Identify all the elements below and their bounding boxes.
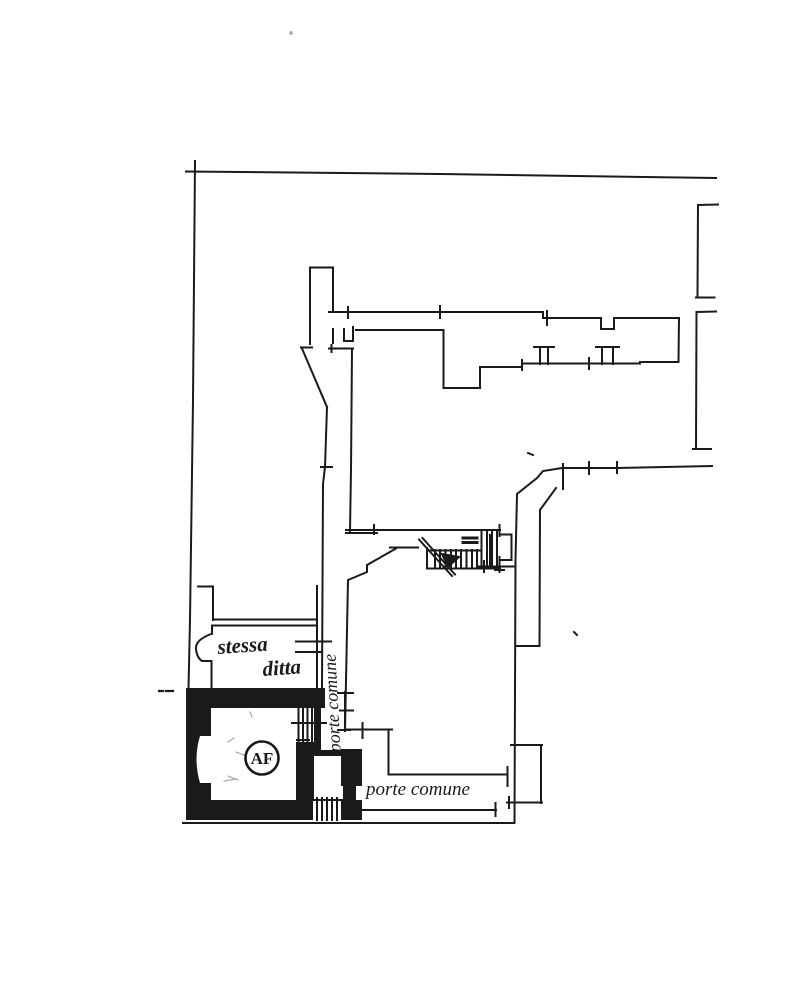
svg-text:porte comune: porte comune — [319, 653, 344, 754]
svg-text:AF: AF — [251, 749, 274, 768]
svg-text:porte comune: porte comune — [364, 779, 470, 800]
svg-text:ditta: ditta — [262, 654, 302, 681]
svg-text:stessa: stessa — [216, 632, 269, 660]
